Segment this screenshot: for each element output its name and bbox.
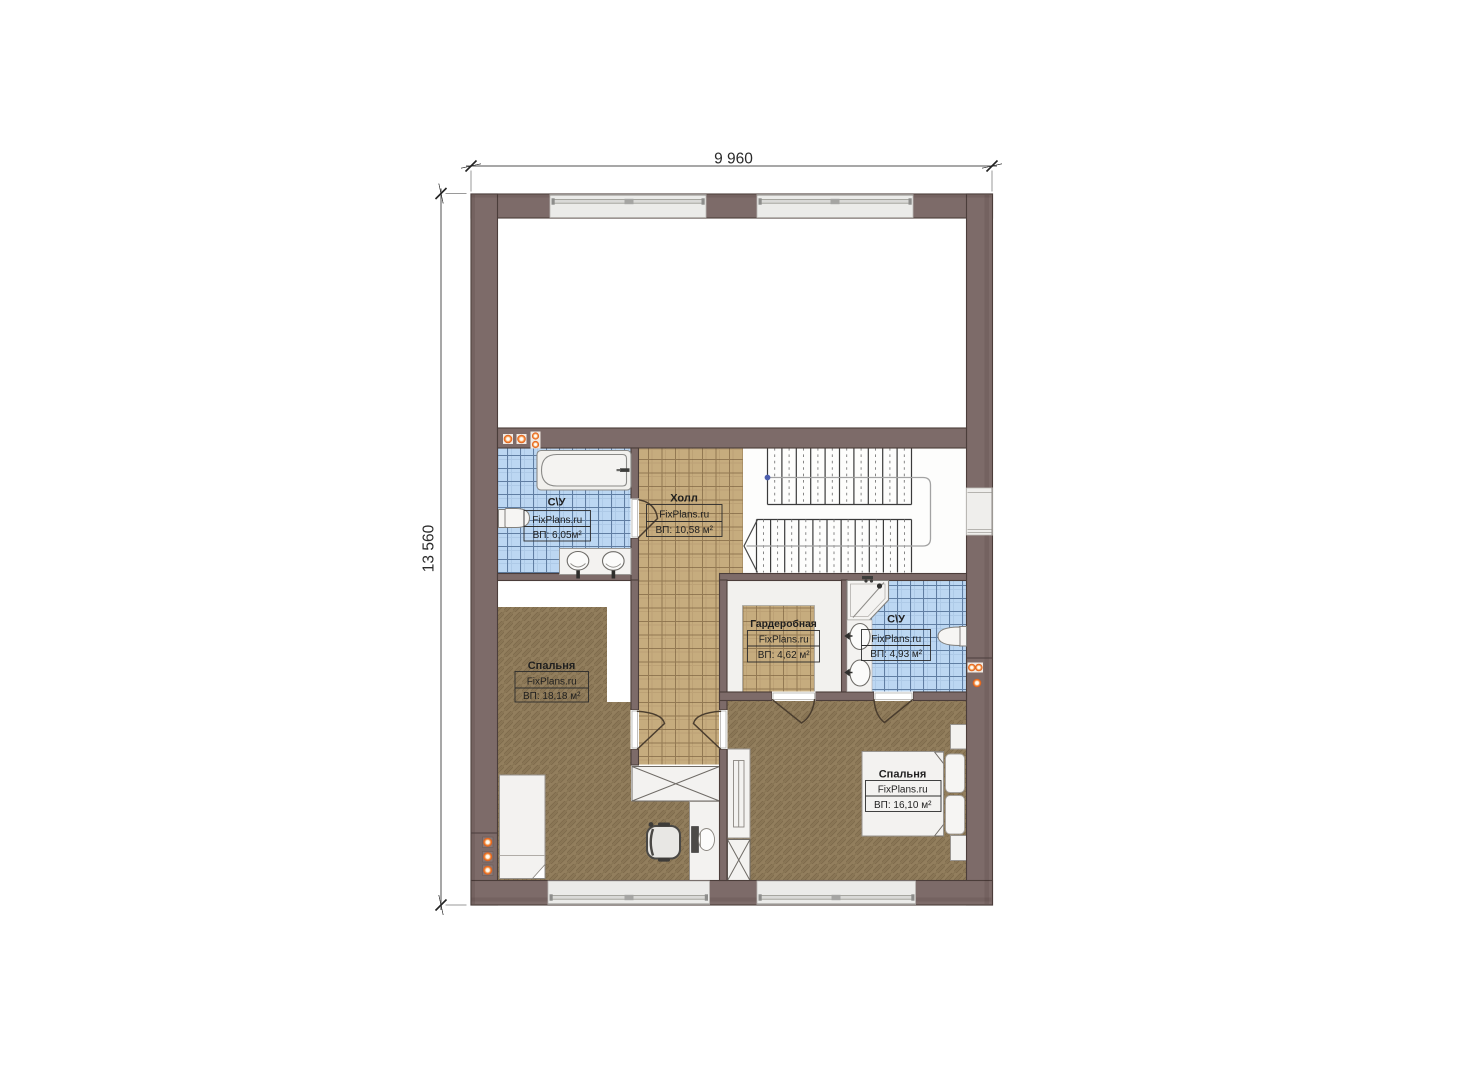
svg-text:FixPlans.ru: FixPlans.ru (871, 634, 921, 645)
svg-text:FixPlans.ru: FixPlans.ru (527, 676, 577, 687)
svg-text:FixPlans.ru: FixPlans.ru (532, 515, 582, 526)
svg-text:Спальня: Спальня (528, 660, 576, 672)
svg-text:ВП: 18,18 м²: ВП: 18,18 м² (523, 691, 581, 702)
svg-text:FixPlans.ru: FixPlans.ru (659, 510, 709, 521)
svg-text:9 960: 9 960 (714, 151, 753, 168)
svg-text:С\У: С\У (548, 497, 566, 509)
svg-text:С\У: С\У (887, 614, 905, 626)
svg-text:Спальня: Спальня (879, 769, 927, 781)
svg-text:ВП: 4,62 м²: ВП: 4,62 м² (758, 650, 811, 661)
svg-text:ВП: 4,93 м²: ВП: 4,93 м² (870, 649, 923, 660)
svg-text:Гардеробная: Гардеробная (750, 618, 817, 630)
svg-text:ВП: 10,58 м²: ВП: 10,58 м² (655, 525, 713, 536)
svg-text:ВП: 16,10 м²: ВП: 16,10 м² (874, 800, 932, 811)
svg-text:ВП: 6,05м²: ВП: 6,05м² (533, 530, 583, 541)
svg-text:FixPlans.ru: FixPlans.ru (759, 635, 809, 646)
svg-text:13 560: 13 560 (421, 524, 438, 572)
svg-text:Холл: Холл (670, 493, 698, 505)
svg-text:FixPlans.ru: FixPlans.ru (878, 785, 928, 796)
